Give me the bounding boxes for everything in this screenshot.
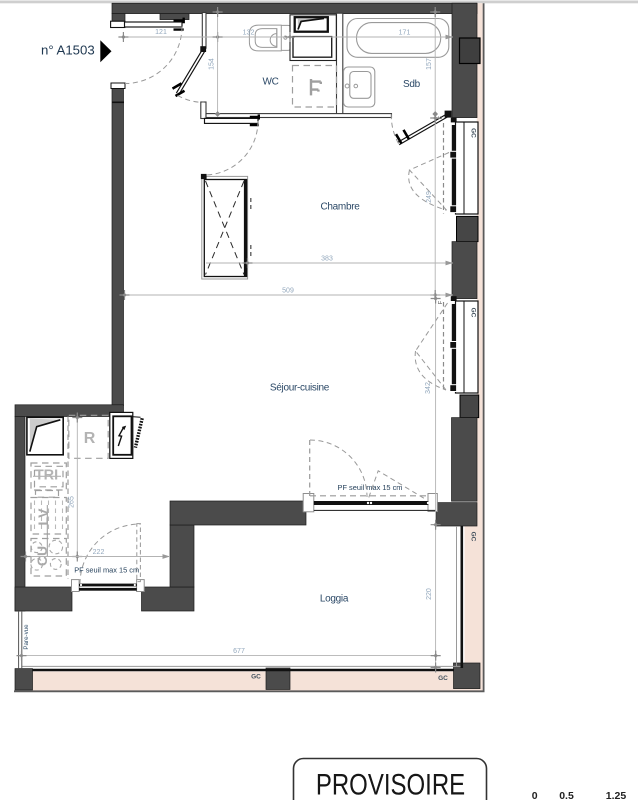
svg-text:154: 154 — [208, 58, 215, 70]
svg-text:WC: WC — [262, 77, 278, 88]
svg-text:220: 220 — [426, 588, 433, 600]
svg-text:342: 342 — [425, 382, 432, 394]
svg-text:Pare-vue: Pare-vue — [23, 624, 30, 650]
svg-text:Séjour-cuisine: Séjour-cuisine — [270, 383, 330, 394]
svg-text:PF seuil max 15 cm: PF seuil max 15 cm — [74, 566, 139, 575]
svg-text:0.5: 0.5 — [559, 790, 574, 800]
svg-text:132: 132 — [243, 30, 255, 37]
svg-text:222: 222 — [93, 549, 105, 556]
svg-text:TRI: TRI — [35, 468, 58, 484]
svg-text:Chambre: Chambre — [320, 202, 360, 213]
svg-text:157: 157 — [426, 58, 433, 70]
svg-text:121: 121 — [155, 29, 167, 36]
svg-text:1.25: 1.25 — [606, 790, 627, 800]
svg-text:LV: LV — [35, 508, 51, 526]
svg-text:677: 677 — [233, 648, 245, 655]
svg-text:GC: GC — [438, 675, 448, 682]
svg-text:Loggia: Loggia — [320, 594, 349, 605]
svg-text:GC: GC — [470, 128, 477, 138]
svg-text:GC: GC — [469, 532, 476, 542]
svg-text:383: 383 — [321, 256, 333, 263]
svg-text:Sdb: Sdb — [403, 79, 421, 90]
svg-text:PF seuil max 15 cm: PF seuil max 15 cm — [338, 483, 403, 492]
svg-text:249: 249 — [426, 191, 433, 203]
svg-text:GC: GC — [470, 308, 477, 318]
svg-text:509: 509 — [282, 288, 294, 295]
svg-text:n° A1503: n° A1503 — [41, 43, 95, 58]
svg-text:GC: GC — [251, 674, 261, 681]
svg-text:R: R — [84, 430, 96, 447]
svg-text:F: F — [438, 300, 444, 304]
svg-text:265: 265 — [69, 496, 76, 508]
svg-text:0: 0 — [532, 790, 538, 800]
svg-text:CU: CU — [34, 546, 50, 566]
svg-text:171: 171 — [399, 30, 411, 37]
svg-text:PROVISOIRE: PROVISOIRE — [316, 767, 465, 800]
